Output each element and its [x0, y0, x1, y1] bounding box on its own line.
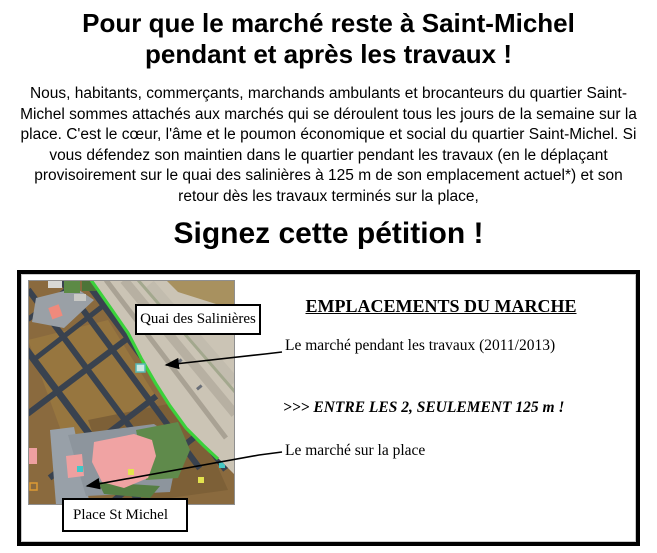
page-title-line1: Pour que le marché reste à Saint-Michel: [6, 8, 651, 39]
annotation-distance-note: >>> ENTRE LES 2, SEULEMENT 125 m !: [283, 399, 564, 417]
map-panel: Quai des Salinières Place St Michel EMPL…: [17, 270, 640, 546]
annotation-marche-travaux: Le marché pendant les travaux (2011/2013…: [285, 337, 555, 355]
map-label-quai-des-salinieres: Quai des Salinières: [135, 304, 261, 335]
intro-paragraph: Nous, habitants, commerçants, marchands …: [18, 84, 640, 207]
page-title-line2: pendant et après les travaux !: [6, 39, 651, 70]
panel-heading: EMPLACEMENTS DU MARCHE: [269, 296, 613, 317]
page-title: Pour que le marché reste à Saint-Michel …: [6, 8, 651, 70]
petition-call-to-action: Signez cette pétition !: [0, 217, 657, 251]
annotation-marche-place: Le marché sur la place: [285, 442, 425, 460]
map-label-place-st-michel: Place St Michel: [62, 498, 188, 532]
